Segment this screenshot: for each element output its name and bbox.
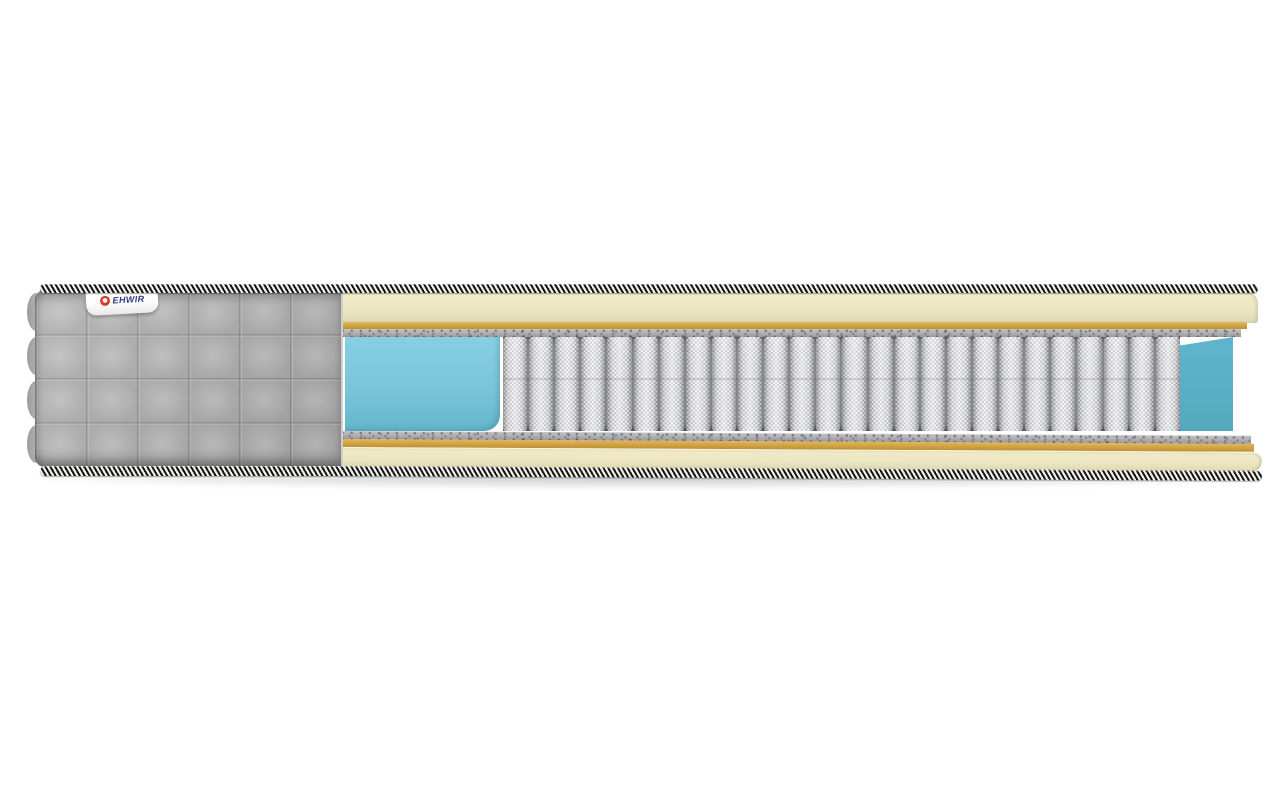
spring-coil (895, 337, 919, 431)
spring-coil (764, 337, 788, 431)
top-adhesive-line (341, 322, 1247, 329)
spring-coil (947, 337, 971, 431)
spring-coil (581, 337, 605, 431)
spring-coil (1077, 337, 1101, 431)
spring-coil (1130, 337, 1154, 431)
spring-coil (660, 337, 684, 431)
spring-coil (555, 337, 579, 431)
spring-coil (634, 337, 658, 431)
spring-coil (529, 337, 553, 431)
spring-coil (869, 337, 893, 431)
spring-coil (816, 337, 840, 431)
pocket-springs (503, 337, 1180, 431)
brand-tag-label: EHWIR (112, 294, 144, 306)
spring-coil (921, 337, 945, 431)
quilted-cover (35, 290, 343, 467)
spring-coil (1051, 337, 1075, 431)
front-foam-block (345, 337, 500, 431)
spring-coil (1104, 337, 1128, 431)
spring-coil (686, 337, 710, 431)
bottom-layer-group (341, 431, 1271, 486)
spring-coil (790, 337, 814, 431)
spring-coil (1025, 337, 1049, 431)
top-foam-layer (341, 291, 1258, 323)
spring-coil (1156, 337, 1180, 431)
spring-coil (712, 337, 736, 431)
top-piping (40, 284, 1258, 293)
spring-coil (973, 337, 997, 431)
top-felt-pad (341, 329, 1241, 337)
mattress-product-image: EHWIR (0, 0, 1280, 800)
spring-coil (738, 337, 762, 431)
bottom-piping-left (40, 466, 342, 476)
spring-coil (842, 337, 866, 431)
spring-coil (503, 337, 527, 431)
brand-logo-icon (99, 296, 110, 307)
spring-coil (999, 337, 1023, 431)
rear-foam-panel (1180, 337, 1233, 431)
spring-coil (607, 337, 631, 431)
